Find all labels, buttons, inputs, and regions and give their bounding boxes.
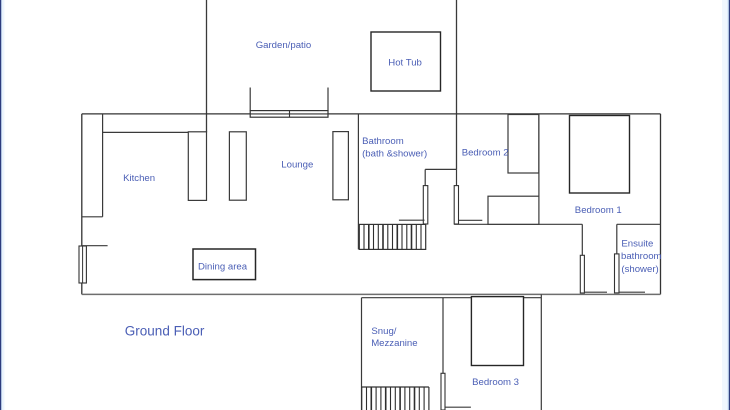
svg-text:Bedroom 1: Bedroom 1 xyxy=(575,205,622,216)
svg-text:(bath &shower): (bath &shower) xyxy=(362,148,427,159)
svg-text:Hot Tub: Hot Tub xyxy=(388,58,422,69)
svg-text:Dining area: Dining area xyxy=(198,262,248,273)
svg-text:Bathroom: Bathroom xyxy=(362,136,404,147)
svg-text:Ground Floor: Ground Floor xyxy=(125,324,205,339)
svg-text:Ensuite: Ensuite xyxy=(621,238,653,249)
svg-text:Bedroom 3: Bedroom 3 xyxy=(472,377,519,388)
svg-text:(shower): (shower) xyxy=(621,264,658,275)
svg-text:Mezzanine: Mezzanine xyxy=(371,338,417,349)
svg-text:bathroom: bathroom xyxy=(621,251,662,262)
svg-text:Bedroom 2: Bedroom 2 xyxy=(462,148,509,159)
svg-text:Snug/: Snug/ xyxy=(371,326,396,337)
svg-text:Lounge: Lounge xyxy=(281,159,313,170)
svg-text:Kitchen: Kitchen xyxy=(123,173,155,184)
svg-text:Garden/patio: Garden/patio xyxy=(256,40,311,51)
